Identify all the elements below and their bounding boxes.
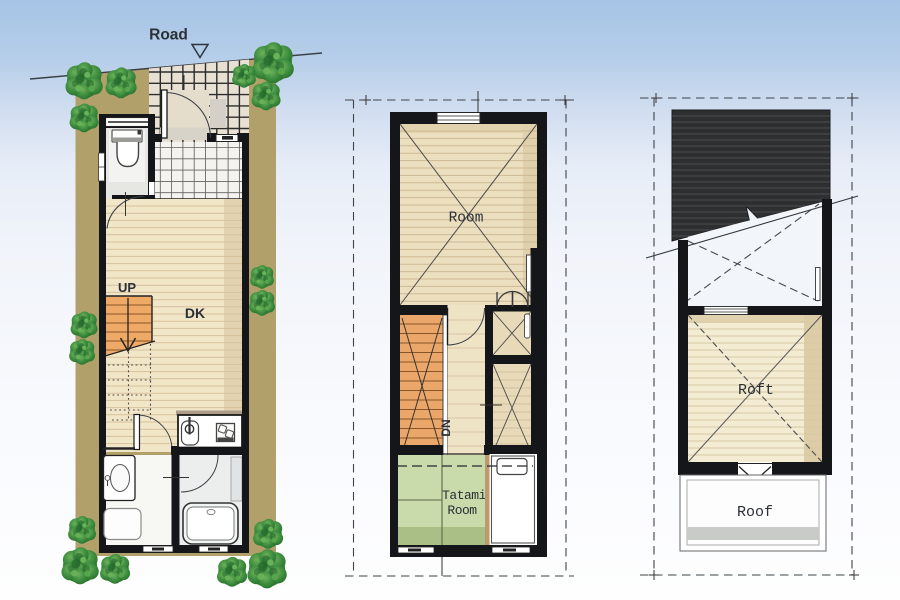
svg-text:Room: Room [447,503,477,518]
svg-text:Roft: Roft [738,382,774,399]
svg-text:DK: DK [185,305,205,321]
svg-text:DN: DN [439,419,453,436]
svg-text:Road: Road [149,27,188,44]
svg-text:Roof: Roof [737,504,773,521]
svg-text:Room: Room [449,211,484,227]
svg-text:Tatami: Tatami [442,488,487,503]
svg-text:UP: UP [118,280,136,295]
